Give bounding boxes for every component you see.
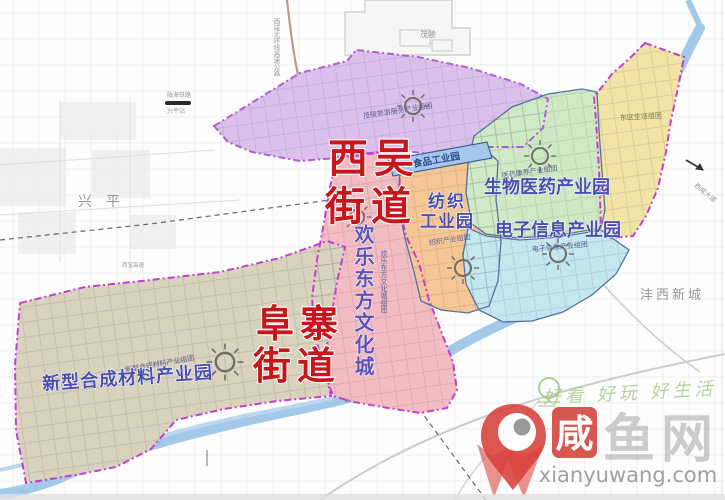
- bridge-marker-icon: [345, 399, 348, 402]
- xiwu-title-line1: 西吴: [328, 135, 420, 182]
- xingping-label: 兴平: [78, 194, 134, 210]
- station-label: 兴平站: [167, 107, 185, 115]
- happy-cluster-label: 欢乐东方文化城组团: [380, 249, 388, 314]
- planning-map: 茂陵旅游服务产业组团 医药康养产业组团 电子信息产业组团 纺织产业组团 新型合成…: [0, 0, 725, 500]
- textile-park-label-1: 纺织: [428, 191, 466, 212]
- watermark-logo-char: 咸: [555, 412, 593, 456]
- textile-park-label-2: 工业园: [420, 212, 474, 232]
- maoling-label: 茂陵: [420, 29, 436, 39]
- xibao-expressway-label: 西宝高速: [122, 261, 145, 269]
- xiwu-title-line2: 街道: [324, 183, 417, 230]
- planning-map-page: 茂陵旅游服务产业组团 医药康养产业组团 电子信息产业组团 纺织产业组团 新型合成…: [0, 0, 725, 500]
- bottom-edge-bar: [0, 494, 725, 500]
- watermark-url: xianyuwang.com: [539, 463, 717, 487]
- biomed-park-label: 生物医药产业园: [484, 176, 610, 198]
- railway-name-label: 陇海铁路: [167, 91, 191, 99]
- station-bar-icon: [165, 101, 191, 105]
- fuzhai-title-line1: 阜寨: [256, 301, 344, 346]
- fengxi-newcity-label: 沣西新城: [640, 287, 704, 303]
- expressway-label: 西咸北环线高速公路: [272, 18, 280, 78]
- fuzhai-title-line2: 街道: [252, 343, 341, 388]
- happy-culture-city-label: 欢乐东方文化城: [351, 223, 375, 378]
- einfo-park-label: 电子信息产业园: [495, 219, 621, 241]
- watermark-logo-suffix: 鱼网: [603, 410, 719, 470]
